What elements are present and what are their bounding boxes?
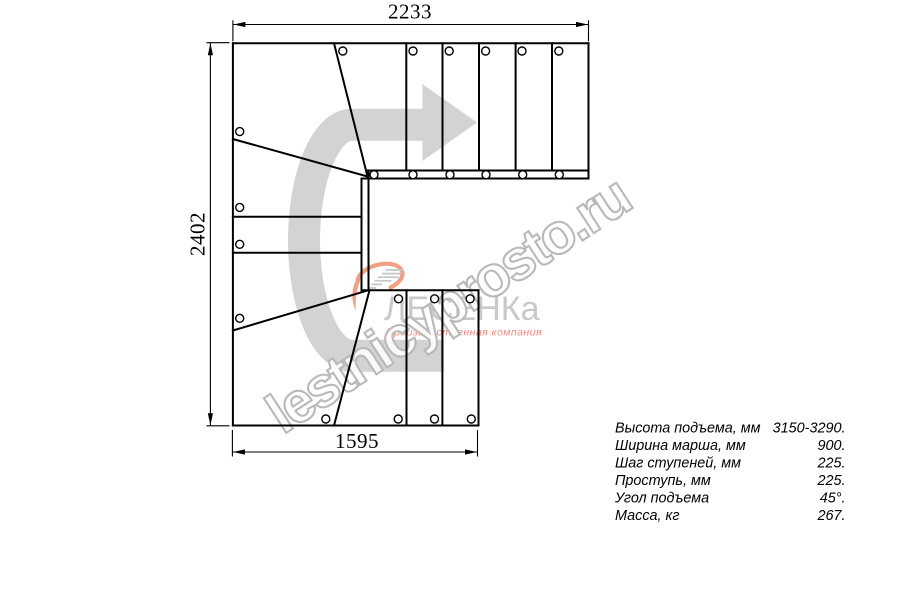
svg-text:900.: 900. xyxy=(817,438,845,454)
svg-text:2233: 2233 xyxy=(388,0,432,24)
svg-text:267.: 267. xyxy=(816,508,845,524)
svg-text:225.: 225. xyxy=(816,456,845,472)
svg-text:Масса, кг: Масса, кг xyxy=(615,508,679,524)
svg-text:225.: 225. xyxy=(816,473,845,489)
svg-text:3150-3290.: 3150-3290. xyxy=(773,420,846,436)
svg-text:Ширина марша, мм: Ширина марша, мм xyxy=(615,438,746,454)
svg-text:Шаг ступеней, мм: Шаг ступеней, мм xyxy=(615,456,741,472)
svg-text:Проступь, мм: Проступь, мм xyxy=(615,473,711,489)
svg-text:45°.: 45°. xyxy=(820,490,846,506)
svg-text:1595: 1595 xyxy=(335,429,379,453)
svg-text:Угол подъема: Угол подъема xyxy=(614,490,709,506)
svg-text:2402: 2402 xyxy=(186,212,210,256)
svg-text:Высота подъема, мм: Высота подъема, мм xyxy=(615,420,761,436)
